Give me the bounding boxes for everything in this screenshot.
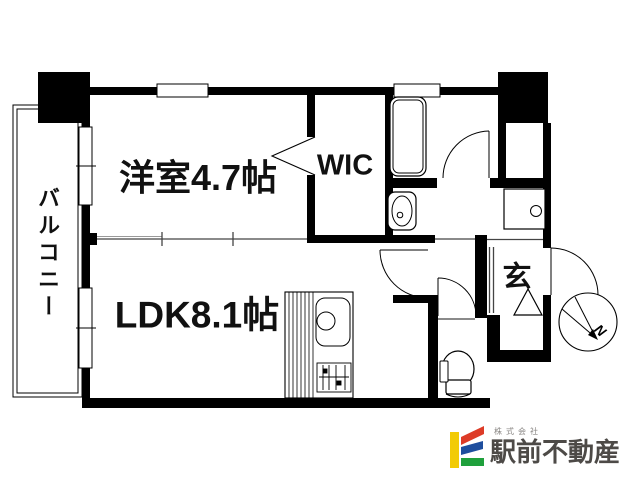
company-logo-mark [447, 424, 485, 470]
floorplan-drawing: N [0, 0, 640, 480]
western-room-label: 洋室4.7帖 [119, 160, 277, 196]
washing-machine-pan-icon [504, 189, 545, 229]
window-top-bath [394, 84, 440, 97]
toilet-door [438, 278, 476, 316]
window-top-western-room [157, 84, 208, 97]
logo-yellow-bar [450, 432, 459, 468]
bath-door [443, 131, 489, 178]
washbasin-icon [388, 192, 416, 230]
wic-label: WIC [317, 152, 373, 181]
ldk-label: LDK8.1帖 [115, 297, 279, 334]
entrance-label: 玄 [502, 264, 531, 293]
company-name: 駅前不動産 [490, 437, 620, 468]
wic-opening-marker [272, 137, 315, 175]
entrance-door [551, 248, 598, 295]
bathtub-icon [390, 97, 426, 176]
ldk-hall-door [380, 250, 428, 298]
stove-icon [317, 363, 351, 392]
kitchen-counter-icon [285, 292, 353, 398]
logo-green-bar [461, 458, 484, 466]
compass-icon: N [559, 293, 617, 351]
company-logo: 株式会社 駅前不動産 [447, 424, 620, 470]
kitchen-sink-icon [316, 298, 350, 346]
company-prefix: 株式会社 [494, 426, 620, 437]
balcony-label: バルコニー [36, 187, 58, 322]
toilet-icon [440, 351, 474, 397]
floorplan-page: N 洋室4.7帖 WIC LDK8.1帖 玄 バルコニー 株式会社 駅前不動産 [0, 0, 640, 480]
